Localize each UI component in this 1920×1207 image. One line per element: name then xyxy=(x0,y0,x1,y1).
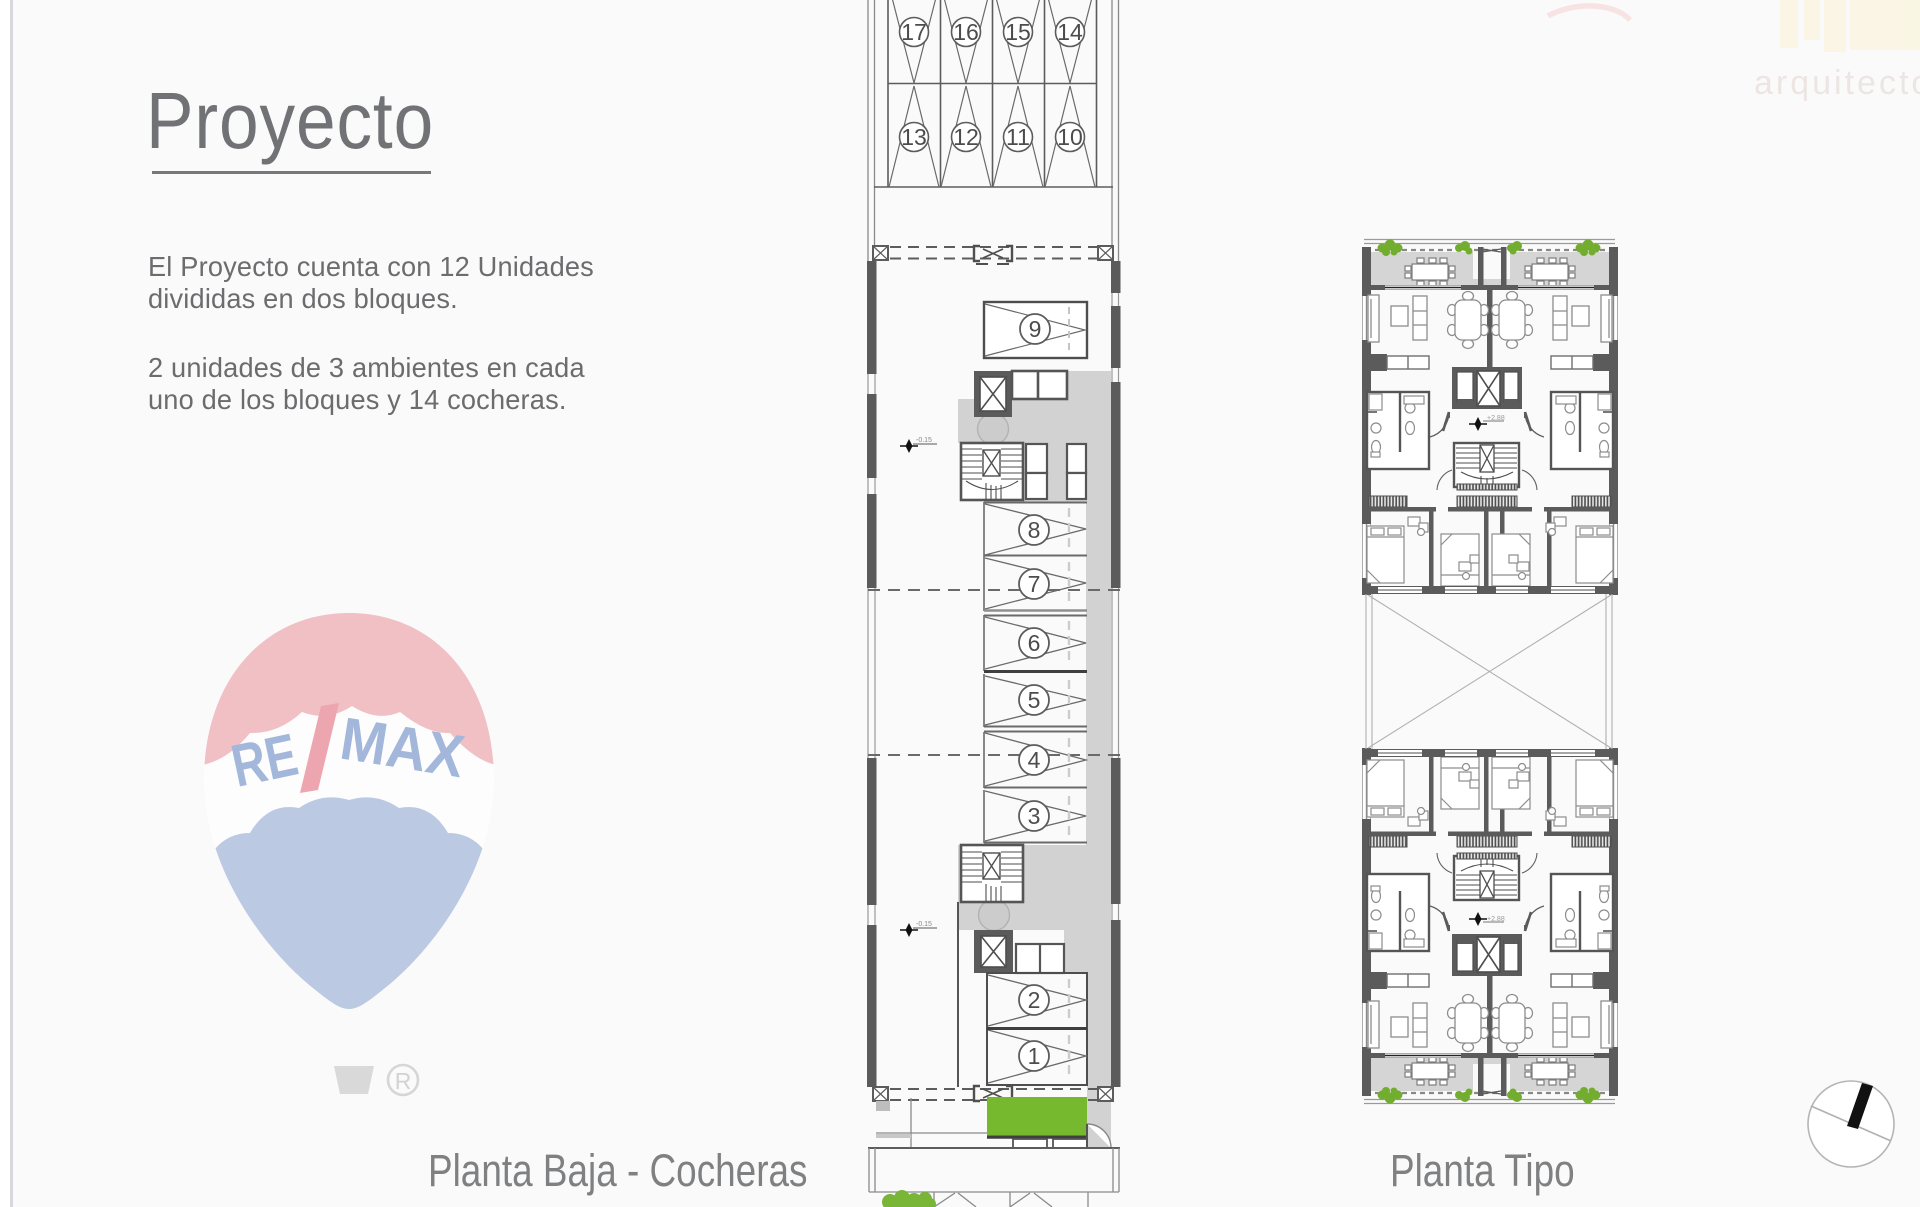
svg-text:+2.88: +2.88 xyxy=(1487,916,1505,923)
svg-text:arquitectos: arquitectos xyxy=(1754,64,1920,102)
svg-text:+2.88: +2.88 xyxy=(1487,415,1505,422)
